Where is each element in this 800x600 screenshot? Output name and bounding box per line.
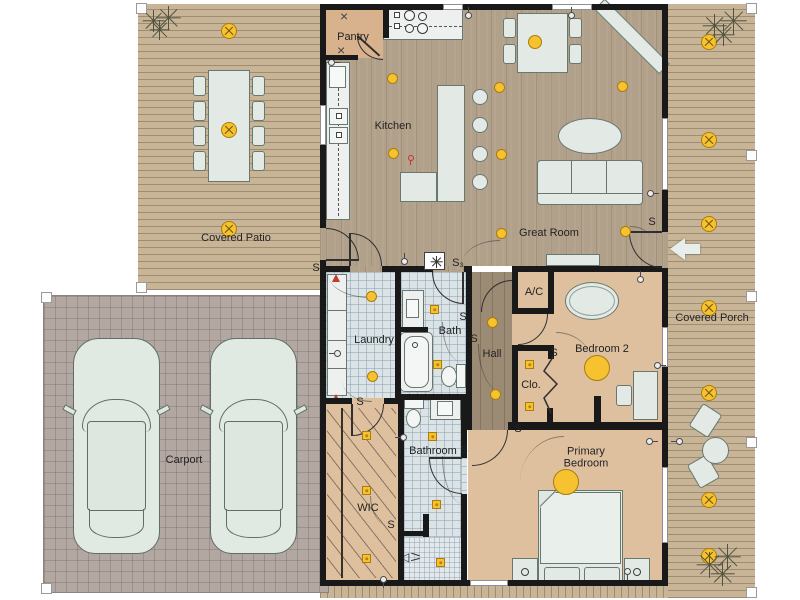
patio-post bbox=[136, 282, 147, 293]
wall bbox=[512, 266, 668, 272]
ceiling-light-icon bbox=[701, 492, 717, 508]
recessed-light-icon bbox=[620, 226, 631, 237]
closet-light-icon bbox=[436, 558, 445, 567]
recessed-light-icon bbox=[487, 317, 498, 328]
switch-label: S₃ bbox=[452, 257, 464, 269]
recessed-light-icon bbox=[496, 149, 507, 160]
recessed-light-icon bbox=[490, 389, 501, 400]
dining-chair bbox=[569, 18, 582, 38]
car bbox=[73, 338, 160, 554]
wall bbox=[320, 4, 668, 10]
patio-chair bbox=[193, 101, 206, 121]
outlet-icon bbox=[624, 568, 631, 575]
patio-chair bbox=[252, 76, 265, 96]
patio-chair bbox=[193, 126, 206, 146]
patio-chair bbox=[252, 151, 265, 171]
outlet-icon bbox=[646, 438, 653, 445]
desk-chair bbox=[616, 385, 632, 406]
closet-light-icon bbox=[428, 432, 437, 441]
switch-label: S bbox=[459, 311, 466, 323]
outlet-icon bbox=[647, 190, 654, 197]
wall bbox=[320, 4, 326, 586]
oven-knob bbox=[336, 113, 342, 119]
switch-label: S bbox=[470, 333, 477, 345]
thermostat-icon bbox=[401, 258, 408, 265]
room-label-wic: WIC bbox=[357, 502, 378, 514]
bedroom2-oval-rug bbox=[565, 282, 619, 320]
closet-light-icon bbox=[525, 402, 534, 411]
porch-post bbox=[746, 150, 757, 161]
carport-post bbox=[41, 292, 52, 303]
switch-label: S bbox=[312, 262, 319, 274]
wall bbox=[508, 422, 668, 430]
door-opening bbox=[662, 232, 668, 268]
plant-icon bbox=[696, 544, 744, 590]
toilet-bowl bbox=[441, 366, 457, 387]
desk bbox=[633, 371, 658, 420]
pendant-light-icon bbox=[528, 35, 542, 49]
wall bbox=[594, 396, 601, 424]
outlet-icon bbox=[676, 438, 683, 445]
switch-label: S bbox=[460, 444, 467, 456]
toilet-bowl bbox=[406, 409, 421, 428]
dining-chair bbox=[503, 44, 516, 64]
recessed-light-icon bbox=[367, 371, 378, 382]
kitchen-sink bbox=[329, 66, 346, 88]
bar-stool bbox=[472, 146, 488, 162]
wall bbox=[398, 327, 428, 332]
toilet-tank bbox=[456, 364, 466, 388]
bath-sink bbox=[406, 299, 419, 318]
patio-chair bbox=[252, 126, 265, 146]
cooktop-burner bbox=[404, 10, 415, 21]
recessed-light-icon bbox=[388, 148, 399, 159]
room-label-great-room: Great Room bbox=[519, 227, 579, 239]
patio-chair bbox=[193, 76, 206, 96]
switch-label: S bbox=[514, 423, 521, 435]
wall bbox=[383, 4, 389, 38]
sofa bbox=[537, 160, 643, 205]
carport-post bbox=[41, 583, 52, 594]
rear-deck-strip bbox=[320, 586, 668, 598]
recessed-light-icon bbox=[494, 82, 505, 93]
closet-rod bbox=[341, 408, 343, 578]
window bbox=[662, 118, 668, 190]
closet-light-icon bbox=[362, 486, 371, 495]
room-label-bath: Bath bbox=[439, 325, 462, 337]
room-label-covered-patio: Covered Patio bbox=[201, 232, 271, 244]
window bbox=[662, 327, 668, 367]
plant-icon bbox=[702, 8, 748, 48]
cooktop-burner bbox=[405, 24, 414, 33]
ceiling-light-icon bbox=[701, 132, 717, 148]
room-label-bathroom: Bathroom bbox=[409, 445, 457, 457]
room-label-bedroom2: Bedroom 2 bbox=[575, 343, 629, 355]
car-rear-window bbox=[89, 509, 144, 538]
window bbox=[443, 4, 463, 10]
switch-label: S bbox=[550, 347, 557, 359]
outlet-icon bbox=[334, 350, 341, 357]
cooktop-burner bbox=[418, 12, 427, 21]
ceiling-light-icon bbox=[221, 23, 237, 39]
switch-label: S bbox=[356, 396, 363, 408]
outlet-icon bbox=[654, 362, 661, 369]
room-label-pantry: Pantry bbox=[337, 31, 369, 43]
wall bbox=[404, 531, 429, 536]
toilet-tank bbox=[404, 399, 424, 409]
shelf-mark-icon: × bbox=[337, 42, 345, 58]
dining-chair bbox=[569, 44, 582, 64]
car bbox=[210, 338, 297, 554]
tub-drain bbox=[412, 342, 418, 348]
recessed-light-icon bbox=[496, 228, 507, 239]
outlet-icon bbox=[465, 12, 472, 19]
door-leaf bbox=[349, 233, 351, 266]
window bbox=[470, 580, 508, 586]
door-leaf bbox=[351, 404, 353, 436]
sheet-fold bbox=[540, 492, 556, 508]
closet-light-icon bbox=[432, 500, 441, 509]
closet-light-icon bbox=[362, 431, 371, 440]
cooktop-knob bbox=[394, 23, 400, 29]
room-label-closet: Clo. bbox=[521, 379, 541, 391]
bar-stool bbox=[472, 89, 488, 105]
shelf-mark-icon: × bbox=[340, 8, 348, 24]
sofa-back-line bbox=[538, 193, 642, 194]
switch-label: S bbox=[648, 216, 655, 228]
porch-post bbox=[746, 437, 757, 448]
window bbox=[320, 105, 326, 145]
closet-light-icon bbox=[525, 360, 534, 369]
room-label-primary-bedroom: Primary Bedroom bbox=[553, 446, 619, 471]
room-label-ac: A/C bbox=[525, 286, 543, 298]
snowflake-icon bbox=[430, 256, 442, 268]
outlet-icon bbox=[637, 276, 644, 283]
ceiling-fixture-icon bbox=[584, 355, 610, 381]
floor-plan: ◁ bbox=[0, 0, 800, 600]
console-table bbox=[546, 254, 600, 266]
oven-knob bbox=[336, 132, 342, 138]
coffee-table-oval bbox=[558, 118, 622, 154]
entry-arrow-icon bbox=[670, 238, 702, 260]
cooktop-burner bbox=[417, 23, 428, 34]
room-label-kitchen: Kitchen bbox=[375, 120, 412, 132]
ceiling-fixture-icon bbox=[553, 469, 579, 495]
recessed-light-icon bbox=[387, 73, 398, 84]
ceiling-light-icon bbox=[701, 385, 717, 401]
dining-chair bbox=[503, 18, 516, 38]
wall bbox=[512, 345, 518, 428]
wall bbox=[461, 494, 467, 586]
room-label-carport: Carport bbox=[166, 454, 203, 466]
sofa-cushion-line bbox=[571, 161, 572, 193]
pot-filler-icon bbox=[408, 155, 414, 161]
ceiling-light-icon bbox=[701, 216, 717, 232]
cooktop-knob bbox=[394, 12, 400, 18]
plant-icon bbox=[142, 6, 182, 44]
sofa-cushion-line bbox=[606, 161, 607, 193]
patio-chair bbox=[252, 101, 265, 121]
table-lamp bbox=[633, 568, 641, 576]
outlet-icon bbox=[380, 576, 387, 583]
bathroom-sink bbox=[437, 401, 453, 416]
porch-post bbox=[746, 587, 757, 598]
car-roof bbox=[87, 421, 146, 511]
closet-light-icon bbox=[362, 554, 371, 563]
rug-inner-line bbox=[569, 286, 615, 316]
outlet-icon bbox=[568, 12, 575, 19]
table-lamp bbox=[521, 568, 529, 576]
porch-post bbox=[746, 291, 757, 302]
closet-light-icon bbox=[430, 305, 439, 314]
door-opening bbox=[350, 266, 382, 272]
kitchen-island bbox=[437, 85, 465, 202]
cabinet-divider bbox=[328, 340, 346, 341]
door-leaf bbox=[462, 272, 464, 304]
kitchen-island-lower bbox=[400, 172, 437, 202]
room-label-laundry: Laundry bbox=[354, 334, 394, 346]
wall bbox=[398, 400, 404, 586]
closet-light-icon bbox=[433, 360, 442, 369]
bar-stool bbox=[472, 174, 488, 190]
switch-label: S bbox=[387, 519, 394, 531]
recessed-light-icon bbox=[366, 291, 377, 302]
ceiling-light-icon bbox=[221, 122, 237, 138]
cabinet-divider bbox=[328, 310, 346, 311]
patio-chair bbox=[193, 151, 206, 171]
recessed-light-icon bbox=[617, 81, 628, 92]
dining-table bbox=[517, 13, 568, 73]
bar-stool bbox=[472, 117, 488, 133]
wall bbox=[395, 266, 401, 404]
hvac-box bbox=[424, 252, 445, 270]
outlet-icon bbox=[400, 434, 407, 441]
room-label-hall: Hall bbox=[483, 348, 502, 360]
faucet-icon bbox=[328, 59, 335, 66]
room-label-covered-porch: Covered Porch bbox=[675, 312, 748, 324]
car-rear-window bbox=[226, 509, 281, 538]
window bbox=[662, 467, 668, 543]
car-roof bbox=[224, 421, 283, 511]
cabinet-divider bbox=[328, 368, 346, 369]
porch-round-table bbox=[702, 437, 729, 464]
